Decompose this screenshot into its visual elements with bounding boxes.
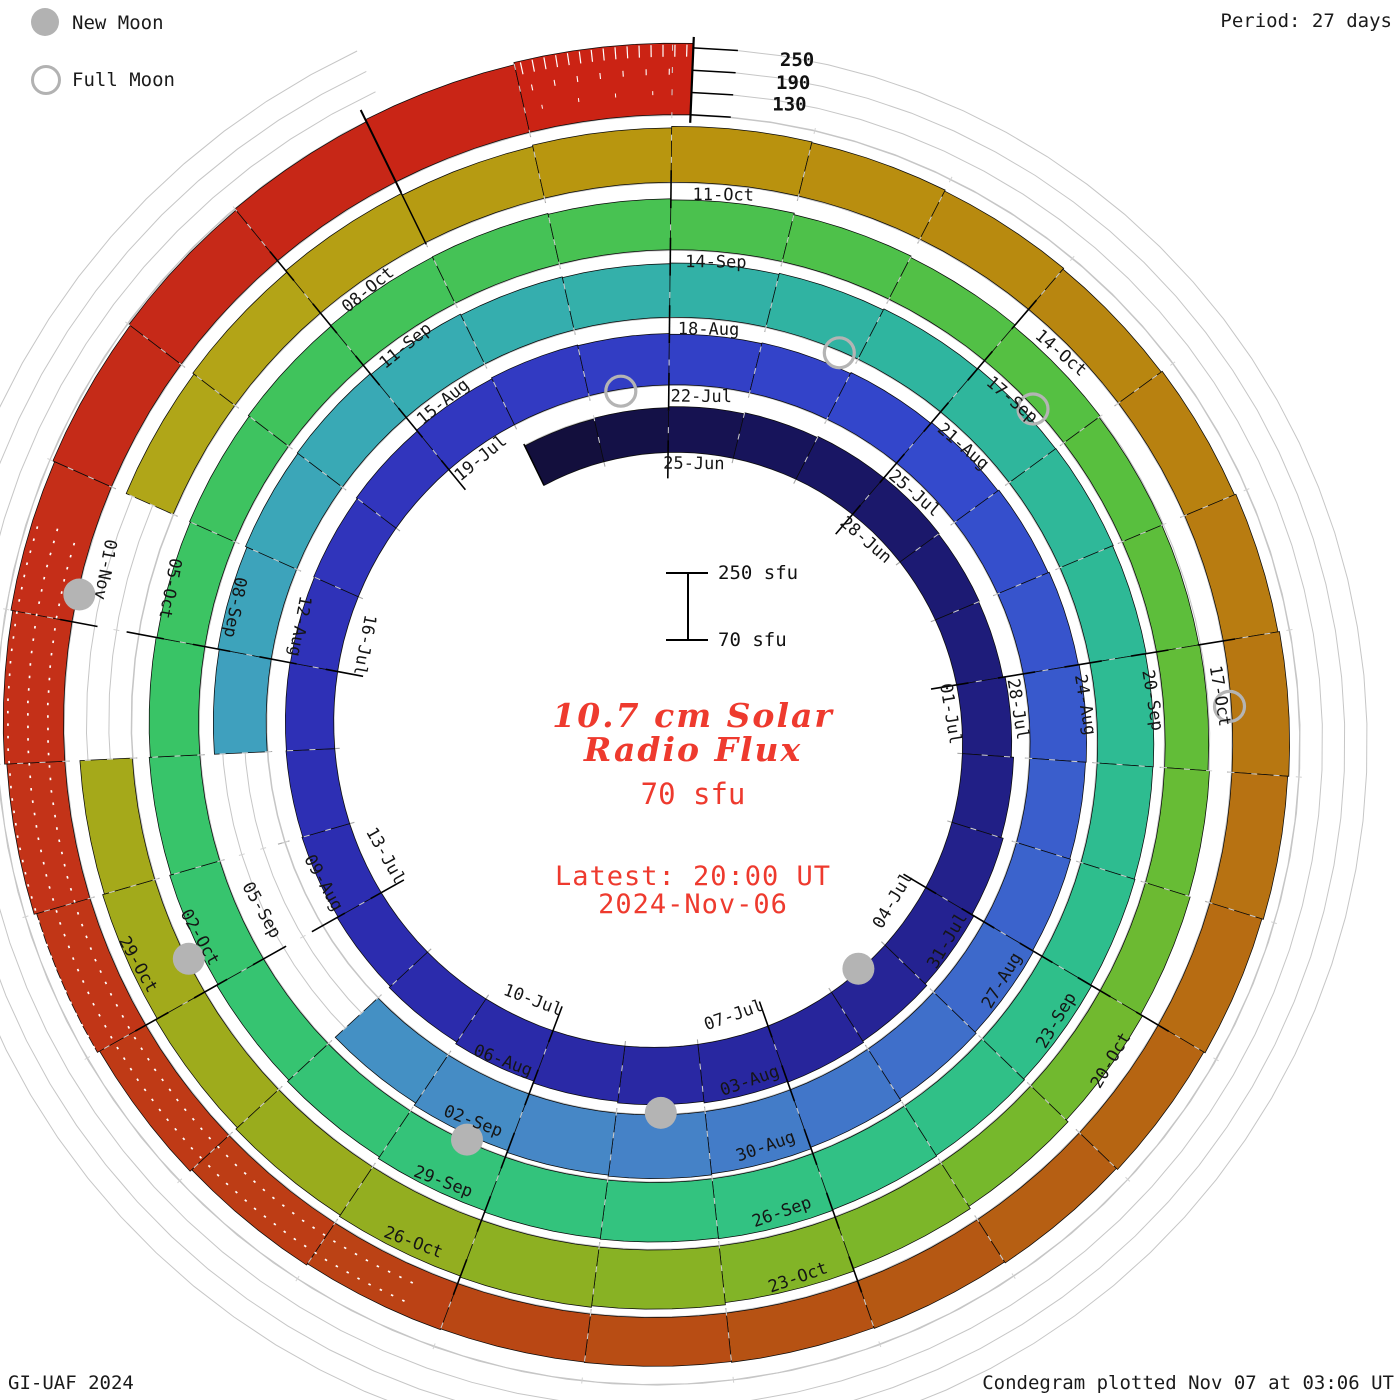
flux-scalebar-line [687,573,689,640]
svg-text:14-Sep: 14-Sep [685,252,747,273]
flux-scalebar-bottom-cap [666,639,708,641]
chart-title-line2: Radio Flux [393,733,993,766]
svg-text:07-Jul: 07-Jul [701,996,766,1035]
latest-date-label: 2024-Nov-06 [393,889,993,920]
svg-text:250: 250 [780,49,814,71]
flux-scalebar-min-label: 70 sfu [718,629,787,651]
flux-scalebar-max-label: 250 sfu [718,562,798,584]
svg-text:01-Nov: 01-Nov [89,537,120,601]
chart-title-line1: 10.7 cm Solar [393,699,993,732]
flux-scalebar-top-cap [666,572,708,574]
condegram-page: New Moon Full Moon Period: 27 days GI-UA… [0,0,1400,1400]
svg-text:25-Jun: 25-Jun [663,454,725,475]
chart-subtitle-flux: 70 sfu [393,777,993,811]
svg-text:11-Oct: 11-Oct [692,185,754,206]
svg-text:16-Jul: 16-Jul [349,613,380,677]
latest-time-label: Latest: 20:00 UT [393,861,993,892]
svg-text:190: 190 [776,72,810,94]
svg-text:18-Aug: 18-Aug [678,319,740,340]
svg-text:130: 130 [772,94,806,116]
svg-text:22-Jul: 22-Jul [670,386,732,407]
